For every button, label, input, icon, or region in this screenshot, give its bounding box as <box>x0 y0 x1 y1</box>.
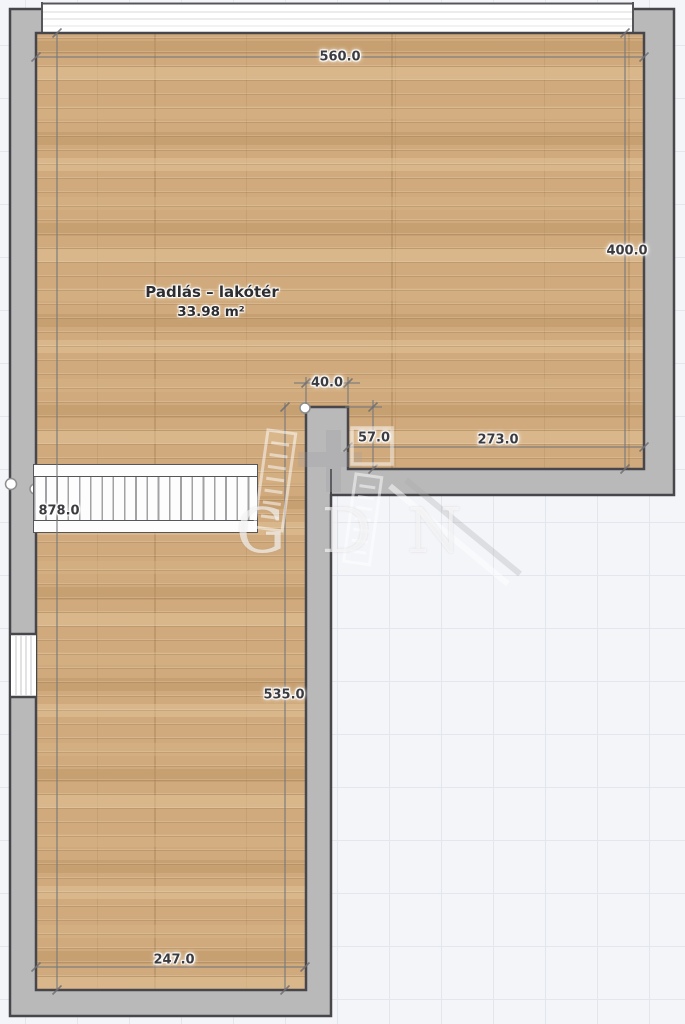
dimension-label-inner-bottom: 273.0 <box>477 433 518 448</box>
floor-plan-canvas: 560.0 400.0 878.0 535.0 247.0 40.0 57.0 … <box>0 0 685 1024</box>
stair-rail-bottom <box>33 520 258 533</box>
dimension-label-notch-height: 57.0 <box>358 431 390 446</box>
stair-rail-top <box>33 464 258 477</box>
dimension-label-wing: 535.0 <box>263 688 304 703</box>
room-name-label: Padlás – lakótér <box>145 283 278 301</box>
dimension-label-right: 400.0 <box>606 244 647 259</box>
room-area-label: 33.98 m² <box>177 304 244 320</box>
top-window <box>41 2 634 33</box>
measure-point-wall <box>6 479 17 490</box>
left-window <box>11 634 36 697</box>
dimension-label-notch-width: 40.0 <box>311 376 343 391</box>
dimension-label-top: 560.0 <box>319 50 360 65</box>
dimension-label-left: 878.0 <box>38 504 79 519</box>
staircase <box>33 464 258 533</box>
dimension-label-bottom: 247.0 <box>153 953 194 968</box>
